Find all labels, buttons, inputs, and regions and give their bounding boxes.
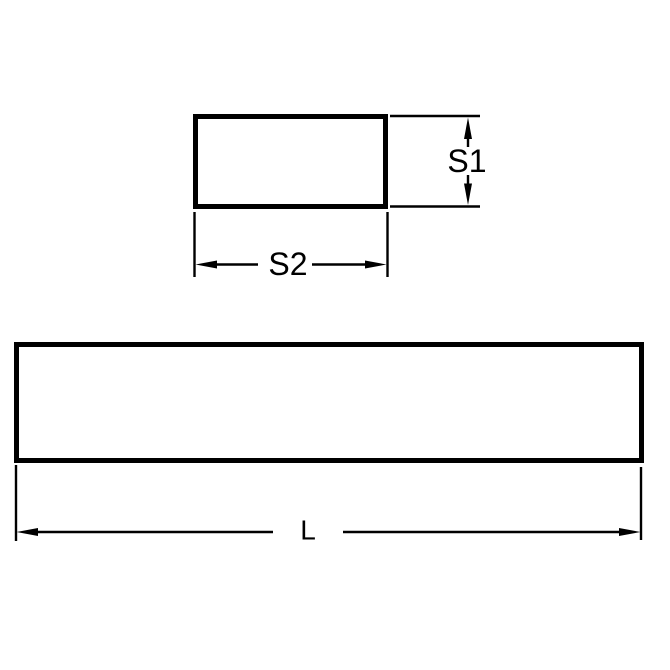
s2-label: S2 [268, 246, 307, 282]
dimension-diagram: S1 S2 L [0, 0, 670, 670]
s1-label: S1 [447, 143, 486, 179]
l-label: L [300, 515, 316, 546]
diagram-background [0, 0, 670, 670]
diagram-canvas: S1 S2 L [0, 0, 670, 670]
